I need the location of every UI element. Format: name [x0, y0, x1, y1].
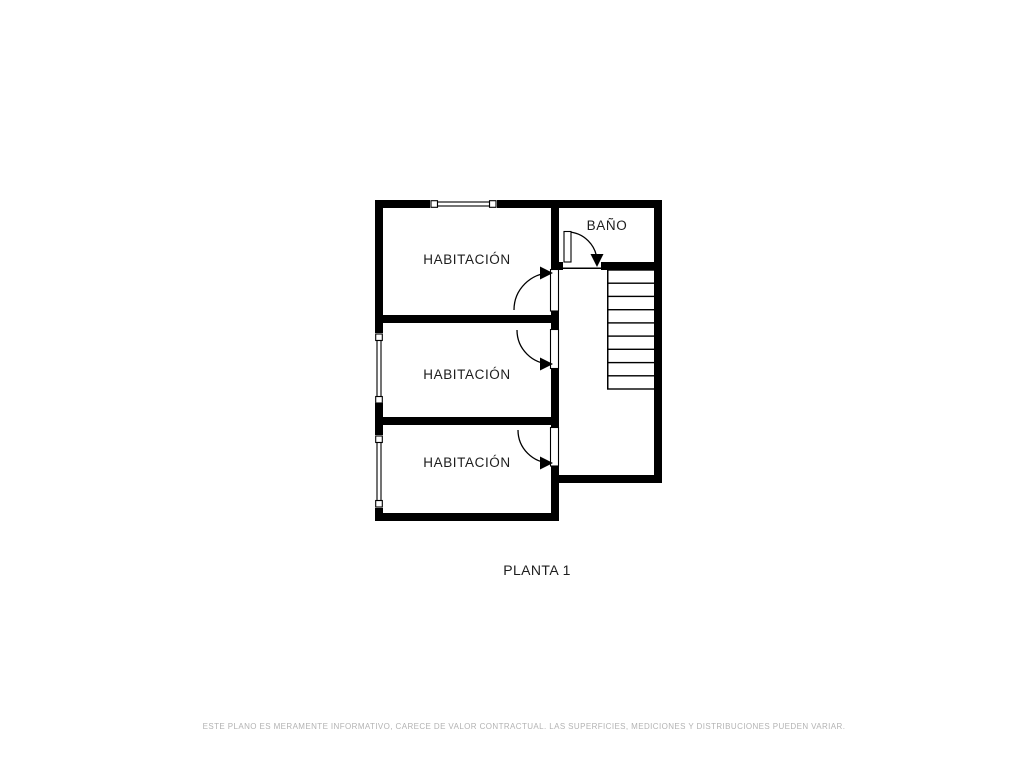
stair-tread: [607, 269, 654, 270]
room-label-habitacion-bottom: HABITACIÓN: [383, 455, 551, 470]
room-label-bano: BAÑO: [559, 218, 655, 233]
stair-tread: [607, 322, 654, 323]
door-icon: [517, 330, 559, 371]
stair-tread: [607, 349, 654, 350]
stair-tread: [607, 362, 654, 363]
floor-plan-page: HABITACIÓN HABITACIÓN HABITACIÓN BAÑO PL…: [0, 0, 1024, 768]
window-icon: [431, 201, 496, 208]
door-icon: [564, 232, 604, 268]
stair-tread: [607, 296, 654, 297]
walls: [375, 200, 662, 521]
window-icon: [376, 436, 383, 507]
disclaimer-text: ESTE PLANO ES MERAMENTE INFORMATIVO, CAR…: [0, 722, 1024, 731]
stair-tread: [607, 309, 654, 310]
room-label-habitacion-top: HABITACIÓN: [383, 252, 551, 267]
floor-plan-drawing: [0, 0, 1024, 768]
plan-title: PLANTA 1: [387, 562, 687, 578]
stair-tread: [607, 375, 654, 376]
stairs-icon: [607, 269, 654, 389]
window-icon: [376, 334, 383, 403]
stair-tread: [607, 283, 654, 284]
stair-tread: [607, 335, 654, 336]
door-icon: [514, 267, 559, 312]
stair-tread: [607, 388, 654, 389]
room-label-habitacion-middle: HABITACIÓN: [383, 367, 551, 382]
